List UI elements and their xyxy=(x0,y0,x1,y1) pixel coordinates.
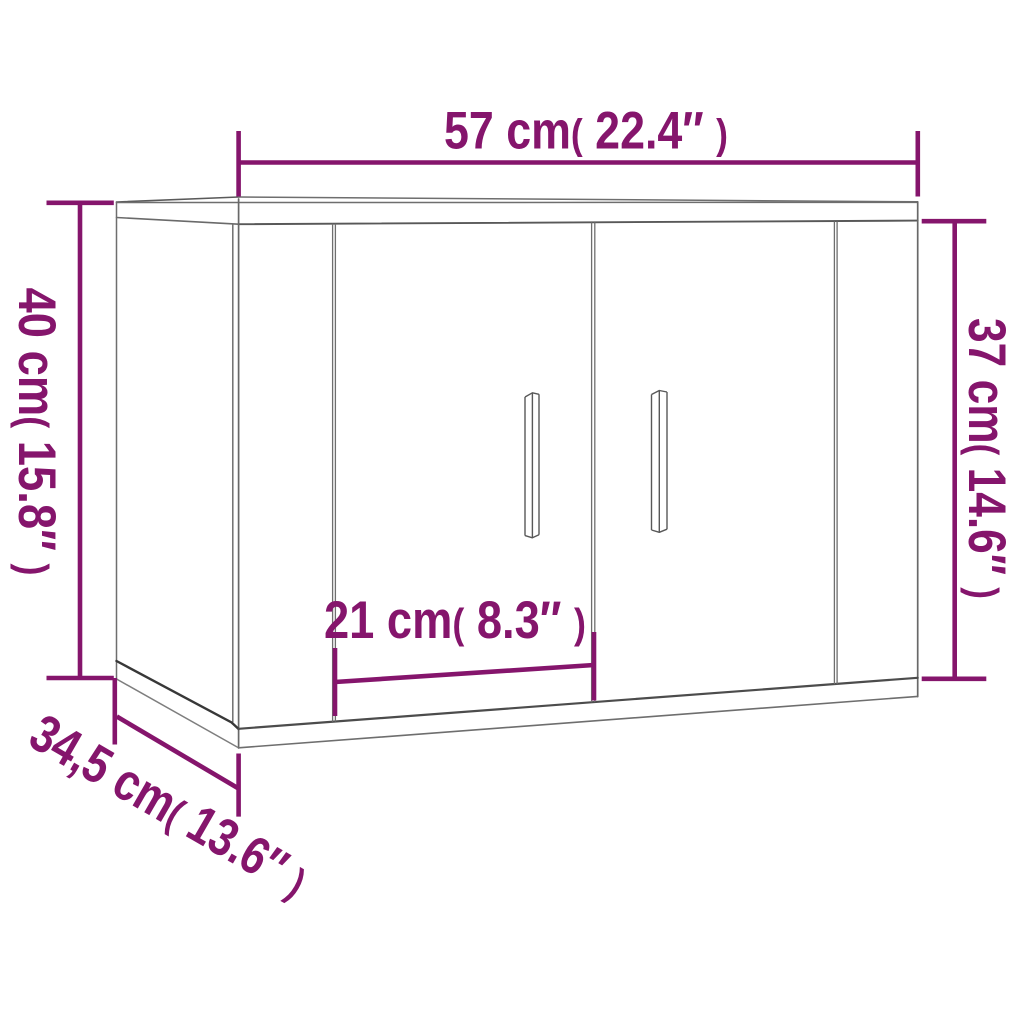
svg-text:37 cm( 14.6″ ): 37 cm( 14.6″ ) xyxy=(957,318,1016,599)
svg-text:40 cm( 15.8″ ): 40 cm( 15.8″ ) xyxy=(7,288,66,576)
svg-text:21 cm( 8.3″ ): 21 cm( 8.3″ ) xyxy=(324,591,586,650)
svg-text:57 cm( 22.4″ ): 57 cm( 22.4″ ) xyxy=(444,102,728,161)
